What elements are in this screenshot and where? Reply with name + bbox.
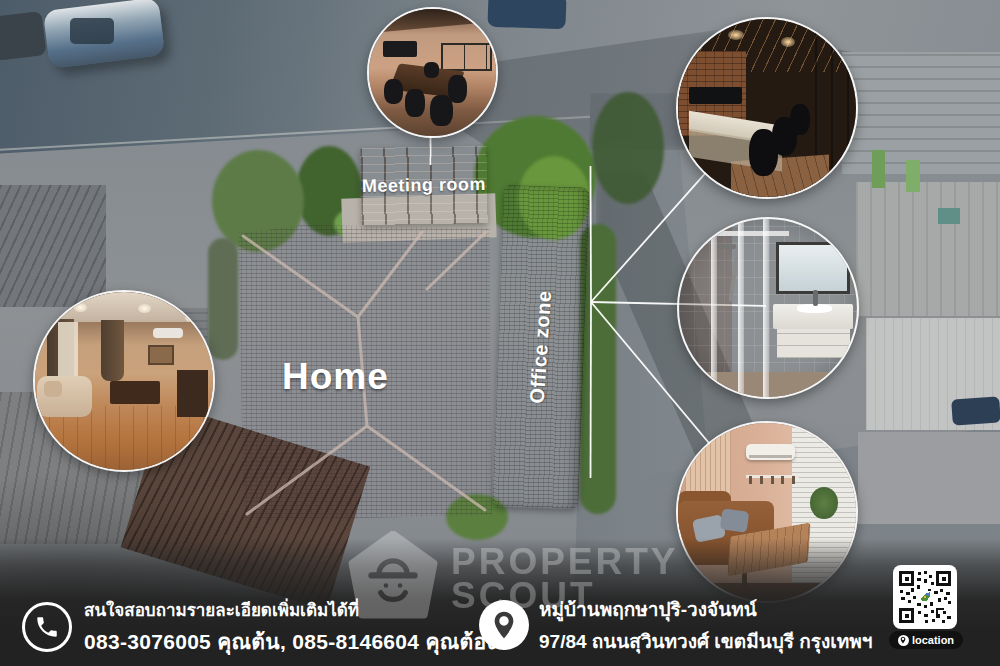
badge-pin-icon <box>898 635 909 646</box>
wall-hook <box>760 476 763 483</box>
glass-partition <box>763 219 769 397</box>
map-pin-glyph <box>488 609 520 641</box>
glass-partition <box>738 219 744 397</box>
pendant-light <box>728 30 744 41</box>
tv-screen <box>383 41 417 58</box>
parked-car <box>0 11 46 61</box>
chair <box>384 79 403 104</box>
wall-hook <box>771 476 774 483</box>
chair <box>405 89 425 117</box>
neighbor-building <box>858 432 1000 524</box>
vanity-cabinet <box>777 329 850 357</box>
window <box>776 242 850 294</box>
neighbor-building <box>842 52 1000 176</box>
shower-head <box>722 244 736 249</box>
contact-block: สนใจสอบถามรายละเอียดเพิ่มเติมได้ที่ 083-… <box>22 596 497 658</box>
hedge <box>208 238 238 360</box>
air-conditioner <box>746 444 796 460</box>
contact-text: สนใจสอบถามรายละเอียดเพิ่มเติมได้ที่ 083-… <box>84 596 497 658</box>
contact-heading: สนใจสอบถามรายละเอียดเพิ่มเติมได้ที่ <box>84 596 497 623</box>
wall-hook <box>749 476 752 483</box>
qr-location-badge: location <box>889 631 963 649</box>
village-name: หมู่บ้านพฤกษาปุริ-วงจันทน์ <box>539 594 872 624</box>
ac-vent <box>749 455 792 458</box>
glass-partition <box>711 219 717 397</box>
wall-art <box>148 345 173 365</box>
meeting-room-building: Meeting room <box>360 146 487 225</box>
neighbor-window <box>938 208 960 224</box>
cushion <box>44 381 62 397</box>
phone-icon <box>22 602 72 652</box>
tree <box>592 92 664 204</box>
window <box>441 43 492 71</box>
neighbor-window <box>906 160 920 192</box>
sideboard <box>177 370 207 416</box>
street-address: 97/84 ถนนสุวินทวงศ์ เขตมีนบุรี กรุงเทพฯ <box>539 626 872 656</box>
air-conditioner <box>153 328 183 339</box>
office-zone-label: Office zone <box>526 290 557 405</box>
neighbor-roof <box>0 185 106 307</box>
wall-hook <box>781 476 784 483</box>
callout-living-room-photo <box>33 290 215 472</box>
chair <box>424 62 439 77</box>
watermark-line1: PROPERTY <box>451 545 679 579</box>
wall-hook <box>792 476 795 483</box>
address-block: หมู่บ้านพฤกษาปุริ-วงจันทน์ 97/84 ถนนสุวิ… <box>479 594 872 656</box>
qr-pattern <box>898 570 952 624</box>
location-pin-icon <box>479 600 529 650</box>
pillow <box>719 508 748 533</box>
curtain <box>101 320 124 381</box>
plant <box>810 487 838 519</box>
contact-phone-numbers: 083-3076005 คุณต้น, 085-8146604 คุณต้อง <box>84 625 497 658</box>
callout-meeting-room-photo <box>367 7 498 138</box>
neighbor-window <box>872 150 885 188</box>
callout-office-interior-photo <box>676 17 858 199</box>
meeting-room-label: Meeting room <box>362 174 486 197</box>
neighbor-building <box>856 182 1000 316</box>
monitors <box>689 87 742 105</box>
badge-pin-glyph <box>899 636 907 644</box>
office-zone-building: Office zone <box>492 185 589 510</box>
chair <box>448 75 467 103</box>
parked-car <box>487 0 566 29</box>
faucet <box>813 290 817 306</box>
office-chair <box>790 104 810 134</box>
location-qr-code <box>893 565 957 629</box>
ceiling-light <box>74 303 86 312</box>
callout-bathroom-photo <box>677 217 859 399</box>
home-label: Home <box>282 356 389 398</box>
phone-handset-icon <box>34 614 60 640</box>
listing-promo-image: Meeting room Office zone Home <box>0 0 1000 666</box>
address-text: หมู่บ้านพฤกษาปุริ-วงจันทน์ 97/84 ถนนสุวิ… <box>539 594 872 656</box>
car-windshield <box>70 18 114 44</box>
parked-car <box>951 396 1000 425</box>
qr-badge-label: location <box>912 634 954 646</box>
console-table <box>110 381 160 404</box>
